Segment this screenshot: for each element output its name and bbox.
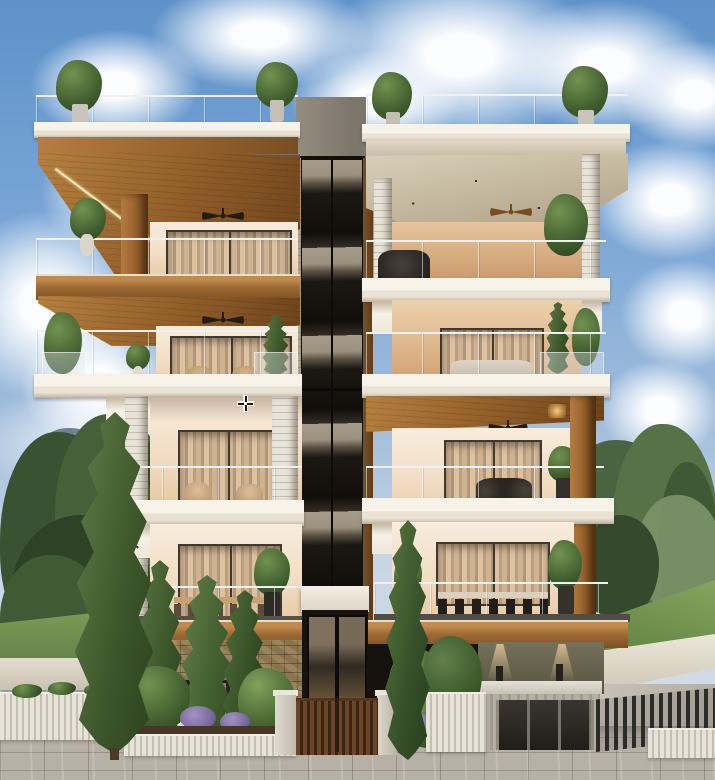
gate-pillar — [275, 695, 296, 755]
garage-structure-cap — [480, 681, 602, 695]
roof-fascia-timber — [38, 137, 298, 154]
balcony-slab — [362, 278, 610, 302]
gate-stile — [335, 698, 339, 752]
balcony-timber-fascia — [36, 274, 300, 300]
balcony-slab — [362, 498, 614, 524]
core-floor-line — [302, 388, 362, 391]
boundary-fence — [648, 728, 715, 758]
entrance-door-glass — [337, 615, 367, 709]
balcony-slab — [34, 374, 302, 398]
entrance-door-glass — [307, 615, 337, 709]
roof-plant-pot — [270, 100, 284, 122]
tree-trunk — [110, 748, 119, 760]
roof-slab — [34, 122, 300, 138]
architectural-render — [0, 0, 715, 780]
pergola-downlight — [548, 404, 566, 418]
cloud — [620, 40, 715, 150]
ceiling-fan — [488, 204, 534, 218]
balcony-slab — [362, 374, 610, 398]
core-mullion — [331, 160, 333, 646]
entrance-canopy — [301, 586, 369, 612]
planter-wall — [124, 734, 296, 756]
ceiling-fan — [200, 208, 246, 222]
cloud — [620, 260, 715, 370]
crosshair-cursor — [237, 395, 254, 412]
garage-door-panels — [496, 700, 594, 750]
core-cap — [296, 97, 366, 161]
ceiling-fan — [200, 312, 246, 326]
plant-vase — [80, 234, 94, 256]
planter-wall — [426, 692, 486, 752]
